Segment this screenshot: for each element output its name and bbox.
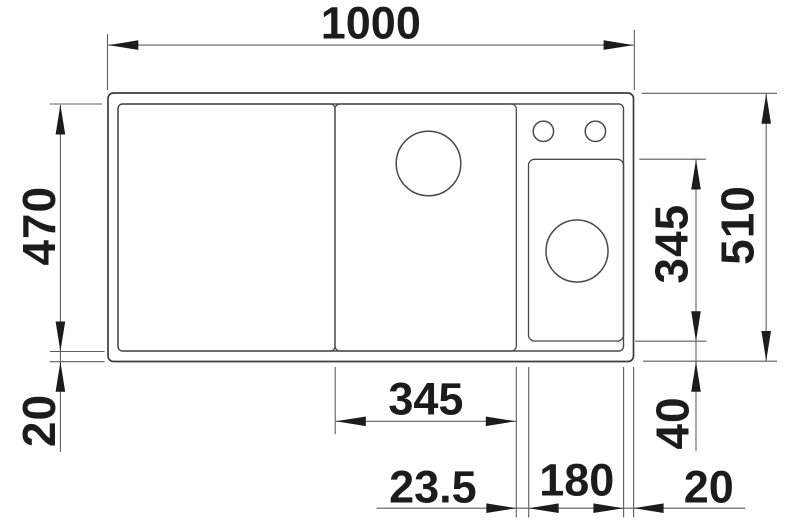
svg-text:40: 40 [647,396,699,449]
svg-text:20: 20 [684,462,734,513]
svg-text:1000: 1000 [321,0,421,49]
svg-text:180: 180 [539,455,614,506]
svg-text:470: 470 [13,186,65,266]
svg-text:20: 20 [13,394,65,447]
svg-text:23.5: 23.5 [389,462,477,513]
svg-text:345: 345 [646,204,698,284]
svg-text:345: 345 [388,374,463,425]
svg-text:510: 510 [712,185,764,265]
